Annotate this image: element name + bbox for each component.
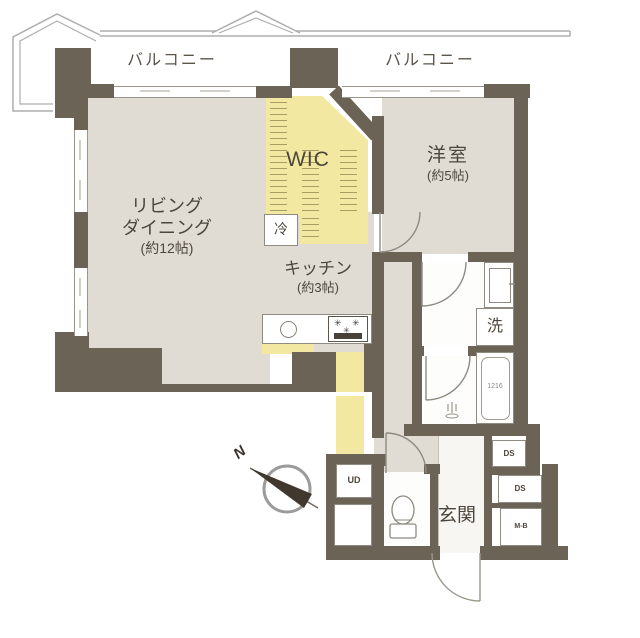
balcony-left-label: バルコニー xyxy=(110,48,234,74)
wall xyxy=(256,86,292,98)
wall xyxy=(372,316,384,346)
bathtub-size-label: 1216 xyxy=(481,381,509,393)
entrance-door xyxy=(432,553,480,601)
wall xyxy=(382,252,422,262)
wall xyxy=(372,462,384,556)
ds-upper-label: DS xyxy=(503,449,514,459)
wall xyxy=(424,464,440,474)
toilet-room-floor xyxy=(384,472,430,546)
kitchen-name: キッチン xyxy=(284,258,352,279)
wall xyxy=(412,356,422,424)
ud-label: UD xyxy=(348,475,361,486)
entrance-floor xyxy=(438,436,485,553)
wall xyxy=(74,84,114,98)
wall xyxy=(404,424,540,436)
wall xyxy=(292,352,336,392)
ds-lower-label: DS xyxy=(514,484,525,494)
wall xyxy=(372,392,384,438)
wall xyxy=(484,467,540,475)
living-dining-line1: リビング xyxy=(131,195,203,218)
wall xyxy=(290,48,338,88)
washing-machine-space: 洗 xyxy=(476,308,514,346)
living-dining-label: リビング ダイニング (約12帖) xyxy=(92,188,242,264)
wall xyxy=(364,344,384,392)
balcony-right-label: バルコニー xyxy=(368,48,492,74)
kitchen-label: キッチン (約3帖) xyxy=(264,256,372,298)
wall xyxy=(412,346,424,356)
wall xyxy=(55,48,91,84)
meter-box: M-B xyxy=(500,508,542,546)
floor-plan: 冷 ✳ ✳ ✳ 洗 1216 UD DS DS M-B xyxy=(0,0,640,638)
under-floor-storage: UD xyxy=(336,464,372,498)
wall xyxy=(55,84,75,118)
wall xyxy=(468,252,514,262)
hallway-floor xyxy=(384,262,412,438)
wall xyxy=(484,84,530,98)
duct-space-lower: DS xyxy=(498,475,542,503)
kitchen-path-floor xyxy=(336,396,364,454)
wall xyxy=(372,116,384,214)
wall xyxy=(514,98,528,432)
wall xyxy=(55,332,89,392)
wic-shelf-hatch xyxy=(302,218,319,240)
window xyxy=(114,86,256,98)
kitchen-path-floor xyxy=(334,352,364,392)
wall xyxy=(484,436,492,554)
wall xyxy=(412,262,422,348)
window xyxy=(74,130,88,212)
sink-icon xyxy=(280,321,297,338)
compass-north-label: N xyxy=(226,439,254,467)
window xyxy=(74,268,88,336)
western-room-name: 洋室 xyxy=(427,144,469,168)
kitchen-size: (約3帖) xyxy=(297,280,339,296)
wall xyxy=(326,546,440,560)
duct-space-upper: DS xyxy=(492,440,526,467)
western-room-size: (約5帖) xyxy=(427,168,469,184)
living-dining-line2: ダイニング xyxy=(122,217,212,240)
western-room-label: 洋室 (約5帖) xyxy=(398,142,498,186)
window xyxy=(342,86,484,98)
wall xyxy=(74,98,88,130)
stove-grill xyxy=(334,333,362,339)
wall xyxy=(74,212,88,268)
meter-box-label: M-B xyxy=(514,523,527,532)
wall xyxy=(542,464,558,508)
wic-label: WIC xyxy=(268,146,348,174)
refrigerator-label: 冷 xyxy=(274,221,288,239)
vanity-bowl xyxy=(489,268,511,303)
refrigerator-space: 冷 xyxy=(264,214,298,246)
wall xyxy=(88,348,162,392)
wall xyxy=(480,546,568,560)
entrance-label: 玄関 xyxy=(430,502,484,530)
living-dining-size: (約12帖) xyxy=(141,240,194,258)
storage-box xyxy=(334,504,372,546)
washing-machine-label: 洗 xyxy=(487,317,503,337)
